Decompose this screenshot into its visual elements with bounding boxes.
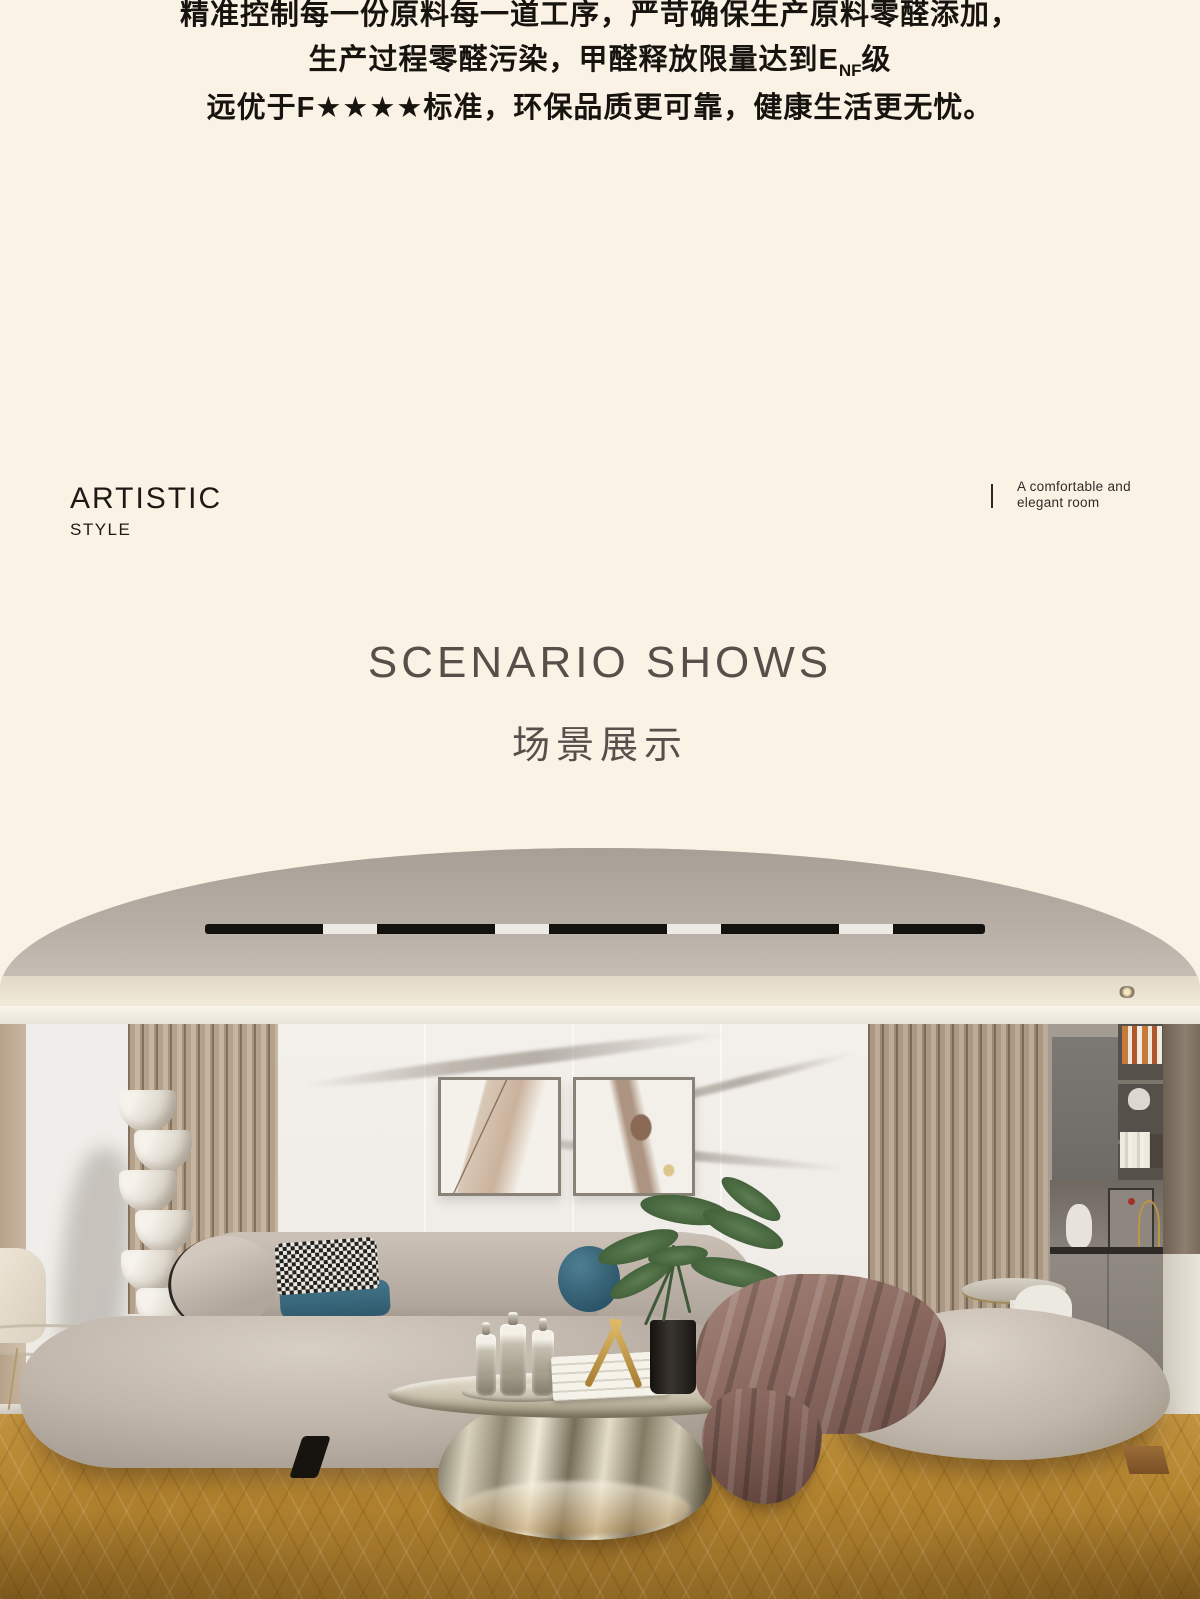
intro-line-2: 生产过程零醛污染，甲醛释放限量达到ENF级	[0, 38, 1200, 86]
intro-paragraph: 精准控制每一份原料每一道工序，严苛确保生产原料零醛添加， 生产过程零醛污染，甲醛…	[0, 0, 1200, 131]
cat-figurine	[1066, 1204, 1092, 1248]
portrait-print	[1150, 1134, 1163, 1168]
tall-cabinet-door	[1052, 1037, 1118, 1180]
glass-bottle	[476, 1334, 496, 1396]
shelf-books-top	[1122, 1026, 1162, 1064]
shelf-books-mid	[1120, 1132, 1150, 1168]
houndstooth-pillow	[274, 1237, 379, 1296]
glass-bottle	[500, 1324, 526, 1396]
section-title: SCENARIO SHOWS	[0, 638, 1200, 688]
artwork-left	[438, 1077, 561, 1196]
artistic-subtitle: STYLE	[70, 520, 222, 540]
artwork-right	[573, 1077, 695, 1196]
intro-line-3: 远优于F★★★★标准，环保品质更可靠，健康生活更无忧。	[0, 86, 1200, 131]
niche-counter	[1050, 1247, 1163, 1254]
ottoman-leg	[1123, 1446, 1170, 1474]
plant-vase	[650, 1320, 696, 1394]
caption-text: A comfortable and elegant room	[1017, 479, 1131, 510]
track-light	[205, 924, 985, 934]
left-wood-edge	[0, 1024, 26, 1416]
ceiling	[0, 848, 1200, 980]
gold-ornament	[1138, 1200, 1160, 1250]
caption-divider	[991, 484, 993, 508]
crown-molding	[0, 1006, 1200, 1024]
cabinet-wood-column	[1163, 1024, 1200, 1254]
section-subtitle: 场景展示	[0, 714, 1200, 769]
artistic-style-block: ARTISTIC STYLE	[70, 482, 222, 540]
room-caption: A comfortable and elegant room	[991, 479, 1131, 510]
artistic-title: ARTISTIC	[70, 482, 222, 516]
scenario-photo	[0, 848, 1200, 1599]
caption-line-2: elegant room	[1017, 495, 1131, 511]
section-heading: SCENARIO SHOWS 场景展示	[0, 638, 1200, 769]
cove-light-band	[0, 976, 1200, 1008]
intro-line-1: 精准控制每一份原料每一道工序，严苛确保生产原料零醛添加，	[0, 0, 1200, 38]
ceiling-spotlight	[1118, 986, 1136, 998]
caption-line-1: A comfortable and	[1017, 479, 1131, 495]
enf-subscript: NF	[839, 61, 862, 80]
shelf-figurine	[1128, 1088, 1150, 1110]
